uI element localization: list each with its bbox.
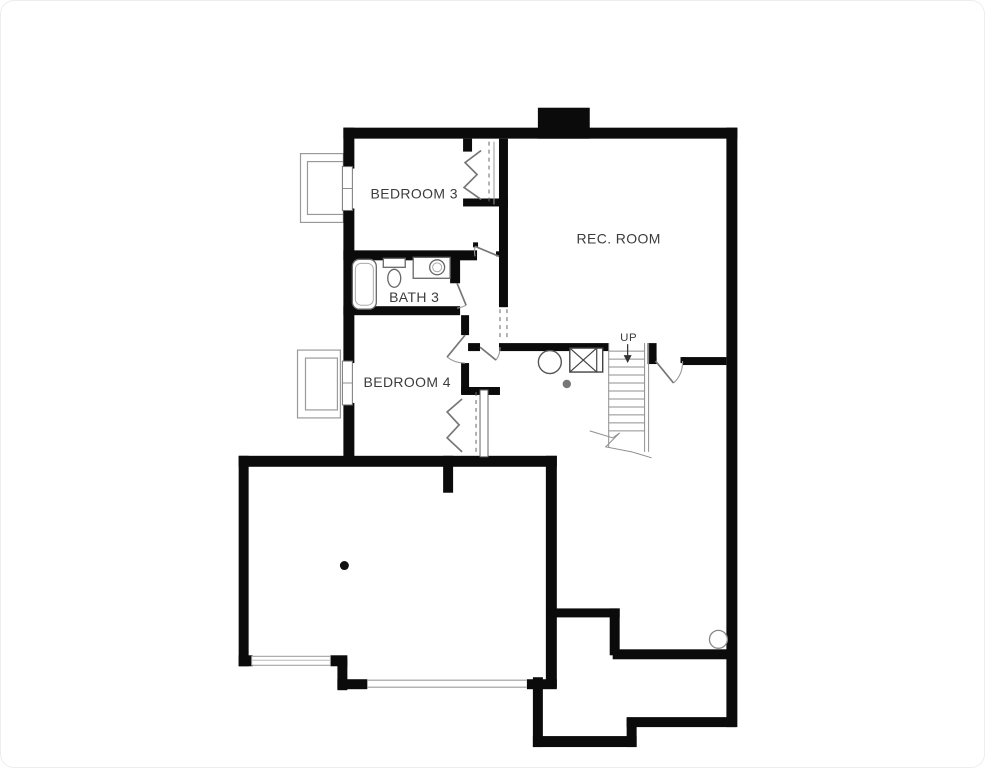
room-label-bedroom-4: BEDROOM 4 — [364, 374, 451, 390]
closet-bedroom-4 — [447, 390, 488, 457]
bath-3-door — [457, 283, 466, 305]
wall-right — [726, 128, 737, 727]
sink — [430, 260, 445, 275]
doors — [447, 246, 682, 383]
wall-door-to-right — [683, 357, 727, 365]
room-label-bath-3: BATH 3 — [389, 289, 439, 305]
closet-back-wall — [480, 390, 488, 457]
wall-protrusion-bottom — [533, 736, 637, 747]
wall-bed4-right-upper — [461, 315, 469, 335]
floor-drain — [563, 380, 571, 388]
wall-bottom-left-of-opening — [337, 679, 367, 689]
room-label-rec-room: REC. ROOM — [577, 230, 661, 246]
window-well-bedroom-3 — [301, 154, 344, 223]
wall-closet-bottom-bed3 — [463, 198, 508, 206]
window-well-inner — [307, 162, 343, 215]
furnace — [570, 348, 603, 372]
hall-door — [656, 361, 674, 383]
wall-bigroom-left — [239, 456, 249, 666]
floor-plan-image: UP BEDROOM 3 REC. ROOM BATH 3 BEDROOM 4 — [0, 0, 985, 768]
wall-jog-horizontal — [552, 608, 620, 617]
room-label-bedroom-3: BEDROOM 3 — [371, 185, 458, 201]
wall-bigroom-top — [239, 456, 557, 467]
wall-bottom-right — [627, 717, 737, 727]
wall-left-upper — [343, 128, 354, 169]
wall-bigroom-bottom-left — [239, 655, 253, 666]
wall-bath-right — [450, 255, 460, 283]
toilet-tank — [383, 258, 405, 267]
wall-closet-stub-top — [463, 139, 472, 152]
floor-plan-svg: UP BEDROOM 3 REC. ROOM BATH 3 BEDROOM 4 — [1, 1, 984, 767]
stairs-up-label: UP — [620, 332, 637, 344]
toilet-bowl — [388, 269, 401, 287]
bedroom-4-door-arc — [447, 357, 465, 363]
support-column — [340, 561, 349, 570]
wall-bigroom-stub — [443, 456, 453, 493]
bifold-doors — [464, 151, 481, 200]
wall-closet-stub — [468, 343, 480, 351]
stair-break-line — [590, 431, 652, 458]
wall-right-area-bottom — [613, 649, 737, 659]
wall-bigroom-right — [546, 456, 557, 687]
bedroom-3-door — [475, 246, 499, 256]
cased-opening — [500, 309, 507, 341]
wall-interior-vertical — [499, 139, 508, 308]
mechanical-area — [538, 348, 602, 388]
hall-door-arc — [674, 361, 683, 383]
chimney — [538, 108, 590, 139]
closet-door — [480, 347, 496, 360]
stair-treads — [609, 351, 645, 431]
window-well-inner — [305, 358, 337, 410]
wall-left-lower — [343, 403, 354, 465]
wall-jog-vertical — [610, 608, 620, 655]
sump-pump — [538, 351, 561, 374]
sump-pit — [709, 630, 727, 648]
bifold-doors — [447, 399, 462, 452]
bedroom-4-door — [447, 335, 465, 357]
window-well-bedroom-4 — [298, 350, 341, 418]
